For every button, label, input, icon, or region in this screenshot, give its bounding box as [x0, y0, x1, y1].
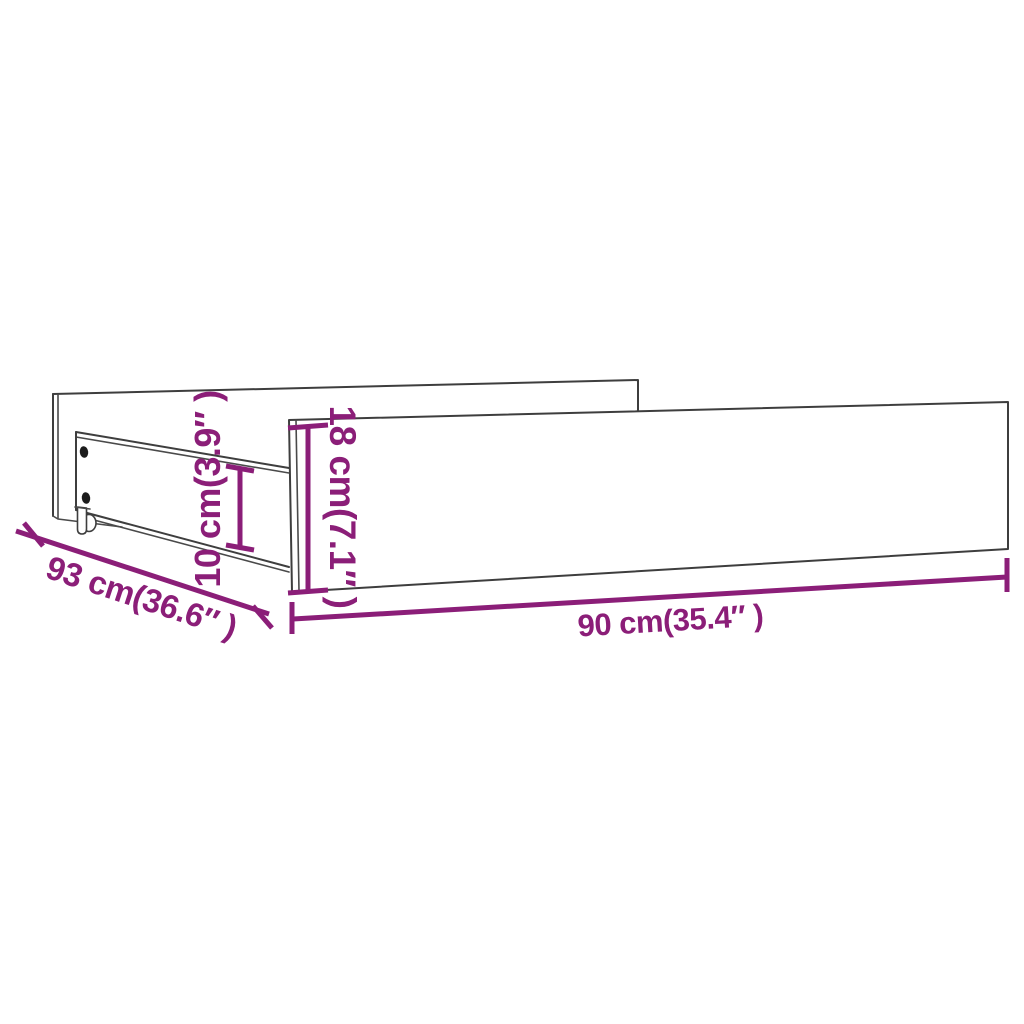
product-diagram-canvas: 93 cm(36.6″ ) 90 cm(35.4″ ) 18 cm(7.1″ )… [0, 0, 1024, 1024]
dimension-rail-height: 10 cm(3.9″ ) [187, 390, 254, 587]
front-height-dimension-cap-bottom [288, 590, 328, 593]
width-dimension-label: 90 cm(35.4″ ) [577, 598, 765, 644]
screw-holes [79, 446, 91, 505]
screw-hole [79, 446, 89, 459]
front-panel-face [289, 402, 1008, 592]
caster-wheel [75, 507, 96, 534]
rail-height-dimension-cap-bottom [226, 545, 254, 550]
drawer-dimension-diagram: 93 cm(36.6″ ) 90 cm(35.4″ ) 18 cm(7.1″ )… [0, 0, 1024, 1024]
front-height-dimension-cap-top [288, 425, 328, 428]
screw-hole [81, 492, 91, 505]
rail-top-edge-thickness [76, 437, 289, 473]
front-drawer-panel [289, 402, 1008, 592]
rail-height-dimension-label: 10 cm(3.9″ ) [187, 390, 228, 587]
caster-fork [78, 507, 87, 534]
rail-top-edge [76, 432, 289, 468]
side-rail [76, 432, 289, 572]
rail-bottom-edge [76, 510, 289, 567]
dimension-depth: 93 cm(36.6″ ) [16, 523, 272, 646]
front-height-dimension-label: 18 cm(7.1″ ) [322, 406, 363, 609]
